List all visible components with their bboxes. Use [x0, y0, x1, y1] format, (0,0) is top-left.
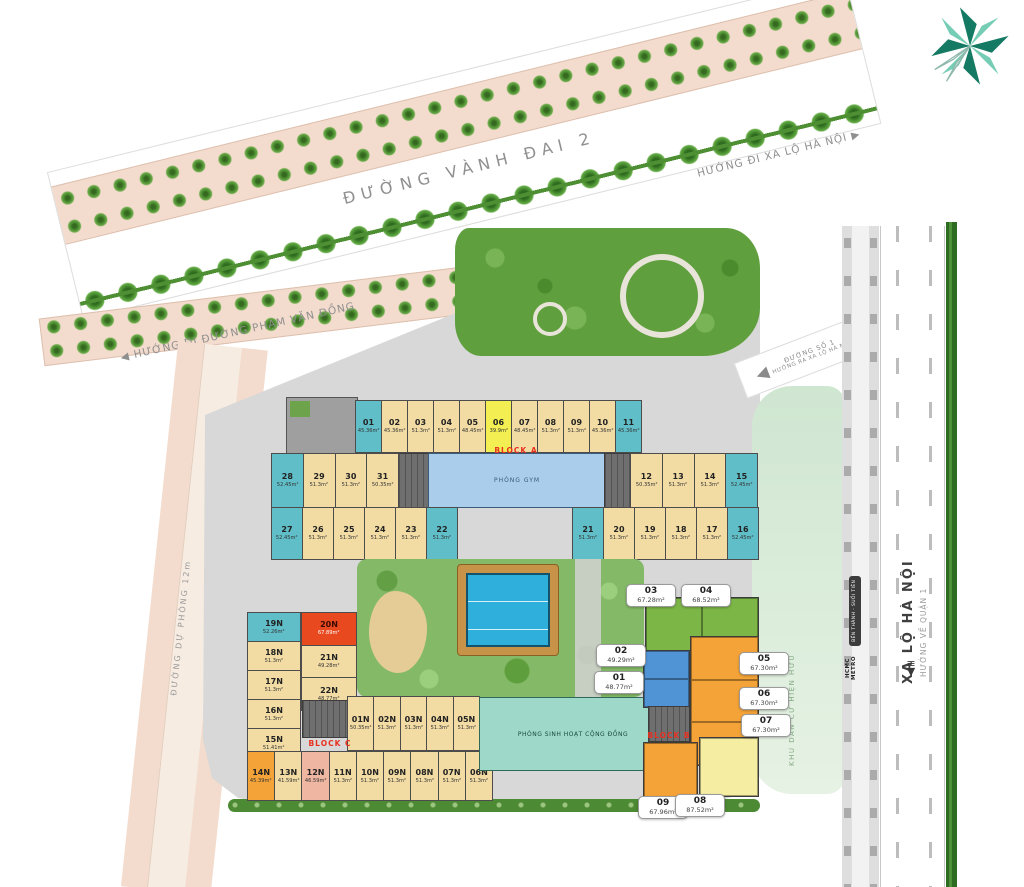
unit-area: 51.3m²	[457, 725, 475, 730]
unit-number: 28	[282, 473, 293, 481]
street-1-name: ĐƯỜNG SỐ 1	[769, 333, 850, 371]
unit-area: 51.3m²	[265, 687, 283, 692]
unit-number: 12	[641, 473, 652, 481]
unit-number: 30	[345, 473, 356, 481]
core-block	[604, 453, 632, 509]
unit-26: 2651.3m²	[302, 507, 334, 560]
unit-area: 51.41m²	[263, 745, 285, 750]
metro-ties	[844, 226, 851, 887]
unit-area: 67.30m²	[743, 727, 789, 734]
block-c-unit-column: 19N52.26m²18N51.3m²17N51.3m²16N51.3m²15N…	[247, 612, 301, 757]
metro-ties	[870, 226, 877, 887]
road-edge-line	[880, 226, 881, 887]
metro-track	[852, 226, 869, 887]
unit-14: 1451.3m²	[694, 453, 727, 508]
unit-callout-01: 01 48.77m²	[594, 671, 644, 694]
unit-30: 3051.3m²	[335, 453, 368, 508]
arrow-right-icon: ▶	[850, 128, 862, 142]
unit-area: 51.3m²	[641, 535, 659, 540]
unit-area: 39.9m²	[489, 428, 507, 433]
unit-area: 51.3m²	[265, 658, 283, 663]
unit-callout-07: 07 67.30m²	[741, 714, 791, 737]
unit-number: 16	[737, 526, 748, 534]
unit-number: 10	[597, 419, 608, 427]
unit-number: 06	[493, 419, 504, 427]
unit-area: 51.3m²	[470, 778, 488, 783]
hcmc-metro-logo: HCMC METRO	[845, 648, 861, 688]
unit-number: 03N	[405, 716, 423, 724]
unit-28: 2852.45m²	[271, 453, 304, 508]
unit-callout-04: 04 68.52m²	[681, 584, 731, 607]
unit-number: 11	[623, 419, 634, 427]
west-wing-row: 2752.45m²2651.3m²2551.3m²2451.3m²2351.3m…	[271, 507, 457, 560]
unit-number: 19	[644, 526, 655, 534]
arrow-down-icon: ≡▼	[903, 660, 919, 676]
unit-number: 16N	[265, 707, 283, 715]
east-wing-row: 2151.3m²2051.3m²1951.3m²1851.3m²1751.3m²…	[572, 507, 758, 560]
block-b-orange-unit-09	[643, 742, 698, 799]
unit-number: 12N	[307, 769, 325, 777]
unit-callout-06: 06 67.30m²	[739, 687, 789, 710]
block-c-unit-row: 14N45.39m²13N41.59m²12N46.59m²11N51.3m²1…	[247, 751, 492, 801]
unit-area: 87.52m²	[677, 807, 723, 814]
east-wing-row: 1250.35m²1351.3m²1451.3m²1552.45m²	[630, 453, 757, 508]
unit-number: 10N	[361, 769, 379, 777]
unit-15: 1552.45m²	[725, 453, 758, 508]
unit-area: 51.3m²	[610, 535, 628, 540]
unit-22: 2251.3m²	[426, 507, 458, 560]
unit-number: 15	[736, 473, 747, 481]
unit-02N: 02N51.3m²	[373, 696, 400, 751]
unit-12: 1250.35m²	[630, 453, 663, 508]
unit-number: 01	[363, 419, 374, 427]
unit-13N: 13N41.59m²	[274, 751, 302, 801]
unit-area: 68.52m²	[683, 597, 729, 604]
site-master-plan: ĐƯỜNG VÀNH ĐAI 2 HƯỚNG ĐI XA LỘ HÀ NỘI ▶…	[0, 0, 1024, 887]
lane-dashes	[929, 226, 932, 887]
unit-27: 2752.45m²	[271, 507, 303, 560]
core-block	[398, 453, 430, 509]
unit-area: 52.45m²	[731, 482, 753, 487]
unit-footprint	[700, 738, 758, 796]
unit-number: 21	[582, 526, 593, 534]
arrow-left-icon: ◀	[120, 350, 131, 364]
unit-area: 51.3m²	[442, 778, 460, 783]
unit-number: 24	[374, 526, 385, 534]
unit-number: 18	[675, 526, 686, 534]
unit-number: 11N	[334, 769, 352, 777]
unit-area: 52.45m²	[276, 535, 298, 540]
unit-area: 51.3m²	[361, 778, 379, 783]
unit-number: 13	[673, 473, 684, 481]
unit-area: 51.3m²	[437, 428, 455, 433]
unit-number: 08N	[416, 769, 434, 777]
lane-dashes	[896, 226, 899, 887]
unit-area: 51.3m²	[672, 535, 690, 540]
unit-number: 09N	[388, 769, 406, 777]
unit-number: 08	[545, 419, 556, 427]
unit-number: 02	[389, 419, 400, 427]
unit-number: 20	[613, 526, 624, 534]
unit-area: 51.3m²	[404, 725, 422, 730]
unit-21N: 21N49.28m²	[301, 645, 357, 679]
unit-04N: 04N51.3m²	[426, 696, 453, 751]
unit-07N: 07N51.3m²	[438, 751, 466, 801]
unit-20: 2051.3m²	[603, 507, 635, 560]
block-b-yellow-unit-08	[699, 737, 759, 797]
unit-number: 26	[312, 526, 323, 534]
unit-11N: 11N51.3m²	[329, 751, 357, 801]
unit-area: 51.3m²	[371, 535, 389, 540]
unit-area: 51.3m²	[378, 725, 396, 730]
unit-area: 52.26m²	[263, 629, 285, 634]
unit-area: 52.45m²	[732, 535, 754, 540]
highway-direction-label: HƯỚNG VỀ QUẬN 1	[919, 562, 928, 677]
unit-number: 20N	[320, 621, 338, 629]
unit-footprint	[644, 743, 697, 798]
unit-19N: 19N52.26m²	[247, 612, 301, 642]
unit-number: 13N	[279, 769, 297, 777]
unit-area: 51.3m²	[541, 428, 559, 433]
unit-area: 45.36m²	[618, 428, 640, 433]
unit-area: 51.3m²	[411, 428, 429, 433]
unit-number: 04	[441, 419, 452, 427]
unit-number: 27	[281, 526, 292, 534]
unit-area: 51.3m²	[342, 482, 360, 487]
unit-02: 0245.36m²	[381, 400, 408, 453]
gym-room: PHÒNG GYM	[428, 453, 606, 508]
unit-area: 67.28m²	[628, 597, 674, 604]
unit-footprint	[644, 679, 689, 707]
unit-callout-05: 05 67.30m²	[739, 652, 789, 675]
unit-number: 14	[704, 473, 715, 481]
unit-number: 01N	[352, 716, 370, 724]
unit-area: 48.77m²	[596, 684, 642, 691]
residential-area-label: KHU DÂN CƯ HIỆN HỮU	[788, 576, 796, 766]
unit-area: 51.3m²	[431, 725, 449, 730]
unit-number: 19N	[265, 620, 283, 628]
unit-area: 51.3m²	[669, 482, 687, 487]
road-edge-line	[944, 226, 945, 887]
unit-area: 51.3m²	[415, 778, 433, 783]
unit-number: 17N	[265, 678, 283, 686]
unit-29: 2951.3m²	[303, 453, 336, 508]
unit-number: 05	[467, 419, 478, 427]
unit-number: 14N	[252, 769, 270, 777]
swimming-pool-deck	[457, 564, 559, 656]
unit-area: 51.3m²	[309, 535, 327, 540]
unit-area: 67.30m²	[741, 700, 787, 707]
block-a-label: BLOCK A	[428, 446, 604, 455]
playground	[369, 591, 427, 673]
metro-corridor	[842, 226, 879, 887]
swimming-pool	[466, 573, 550, 647]
compass-icon	[928, 4, 1012, 88]
unit-area: 51.3m²	[310, 482, 328, 487]
unit-area: 45.39m²	[250, 778, 272, 783]
block-c-unit-row: 01N50.35m²02N51.3m²03N51.3m²04N51.3m²05N…	[347, 696, 479, 751]
block-b-blue-units	[643, 650, 690, 708]
unit-area: 51.3m²	[388, 778, 406, 783]
unit-area: 46.59m²	[305, 778, 327, 783]
unit-number: 18N	[265, 649, 283, 657]
unit-05N: 05N51.3m²	[453, 696, 480, 751]
unit-area: 51.3m²	[340, 535, 358, 540]
unit-area: 51.3m²	[334, 778, 352, 783]
community-hall-label: PHÒNG SINH HOẠT CỘNG ĐỒNG	[518, 731, 628, 738]
unit-area: 49.29m²	[598, 657, 644, 664]
unit-footprint	[644, 651, 689, 679]
unit-11: 1145.36m²	[615, 400, 642, 453]
unit-10N: 10N51.3m²	[356, 751, 384, 801]
unit-area: 45.36m²	[384, 428, 406, 433]
unit-25: 2551.3m²	[333, 507, 365, 560]
unit-18: 1851.3m²	[665, 507, 697, 560]
block-c-label: BLOCK C	[296, 739, 364, 748]
unit-area: 50.35m²	[636, 482, 658, 487]
unit-13: 1351.3m²	[662, 453, 695, 508]
park-circular-path	[620, 254, 704, 338]
unit-17N: 17N51.3m²	[247, 670, 301, 700]
unit-area: 45.36m²	[358, 428, 380, 433]
unit-09N: 09N51.3m²	[383, 751, 411, 801]
unit-number: 07N	[443, 769, 461, 777]
unit-area: 48.45m²	[462, 428, 484, 433]
unit-03N: 03N51.3m²	[400, 696, 427, 751]
gym-label: PHÒNG GYM	[494, 477, 540, 484]
unit-number: 07	[519, 419, 530, 427]
unit-23: 2351.3m²	[395, 507, 427, 560]
unit-number: 09	[571, 419, 582, 427]
metro-line-badge: BẾN THÀNH - SUỐI TIÊN	[849, 576, 861, 646]
unit-area: 67.89m²	[318, 631, 340, 636]
unit-area: 41.59m²	[278, 778, 300, 783]
unit-19: 1951.3m²	[634, 507, 666, 560]
unit-callout-08: 08 87.52m²	[675, 794, 725, 817]
unit-24: 2451.3m²	[364, 507, 396, 560]
unit-31: 3150.35m²	[366, 453, 399, 508]
unit-number: 23	[405, 526, 416, 534]
unit-number: 15N	[265, 736, 283, 744]
unit-area: 51.3m²	[701, 482, 719, 487]
unit-area: 51.3m²	[703, 535, 721, 540]
unit-number: 02N	[378, 716, 396, 724]
landscaped-park	[455, 228, 760, 356]
unit-number: 22	[436, 526, 447, 534]
unit-area: 48.45m²	[514, 428, 536, 433]
unit-number: 31	[377, 473, 388, 481]
unit-area: 51.3m²	[265, 716, 283, 721]
unit-21: 2151.3m²	[572, 507, 604, 560]
unit-18N: 18N51.3m²	[247, 641, 301, 671]
unit-20N: 20N67.89m²	[301, 612, 357, 646]
unit-area: 51.3m²	[433, 535, 451, 540]
unit-number: 22N	[320, 687, 338, 695]
unit-08N: 08N51.3m²	[410, 751, 438, 801]
unit-number: 17	[706, 526, 717, 534]
unit-number: 04N	[431, 716, 449, 724]
unit-14N: 14N45.39m²	[247, 751, 275, 801]
block-a-west-core	[286, 397, 358, 455]
park-small-path	[533, 302, 567, 336]
arrow-left-icon: ◀	[753, 362, 771, 384]
unit-17: 1751.3m²	[696, 507, 728, 560]
unit-callout-02: 02 49.29m²	[596, 644, 646, 667]
unit-area: 67.30m²	[741, 665, 787, 672]
unit-area: 50.35m²	[350, 725, 372, 730]
unit-area: 45.36m²	[592, 428, 614, 433]
unit-number: 29	[314, 473, 325, 481]
block-b-label: BLOCK B	[634, 731, 704, 740]
unit-area: 51.3m²	[567, 428, 585, 433]
unit-16: 1652.45m²	[727, 507, 759, 560]
west-wing-row: 2852.45m²2951.3m²3051.3m²3150.35m²	[271, 453, 398, 508]
unit-number: 03	[415, 419, 426, 427]
park-greenery	[455, 228, 760, 356]
unit-area: 49.28m²	[318, 663, 340, 668]
unit-area: 50.35m²	[372, 482, 394, 487]
unit-01: 0145.36m²	[355, 400, 382, 453]
unit-area: 52.45m²	[277, 482, 299, 487]
unit-16N: 16N51.3m²	[247, 699, 301, 729]
green-buffer-strip	[946, 222, 957, 887]
unit-number: 21N	[320, 654, 338, 662]
unit-number: 25	[343, 526, 354, 534]
unit-area: 51.3m²	[579, 535, 597, 540]
unit-area: 51.3m²	[402, 535, 420, 540]
unit-number: 05N	[457, 716, 475, 724]
unit-callout-03: 03 67.28m²	[626, 584, 676, 607]
unit-12N: 12N46.59m²	[301, 751, 329, 801]
